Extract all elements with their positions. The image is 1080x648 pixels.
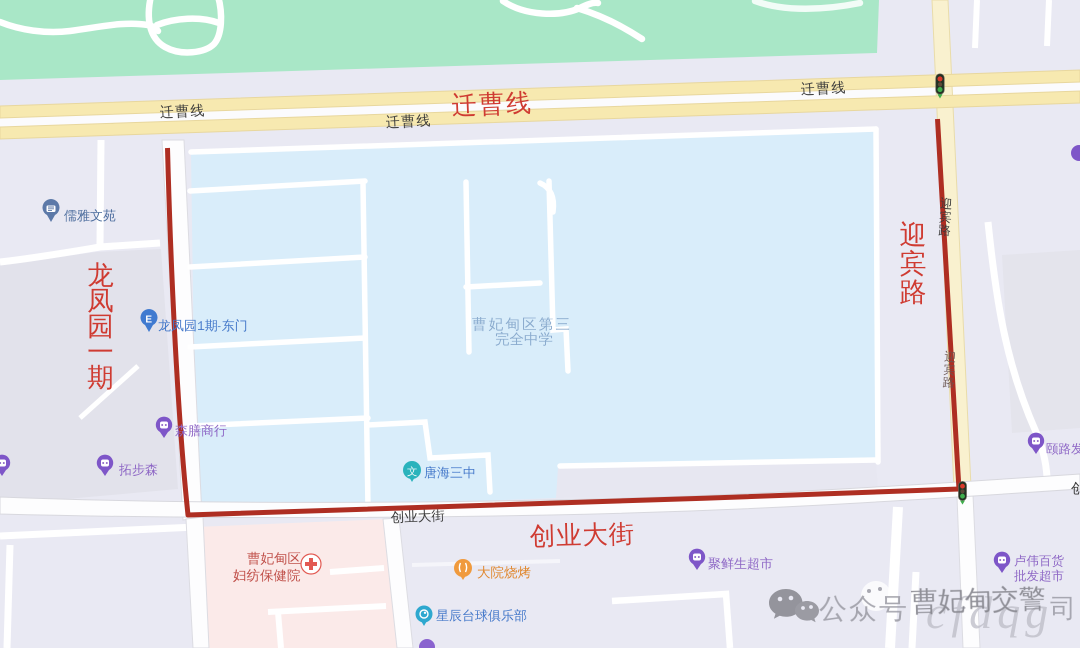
svg-text:E: E xyxy=(145,315,152,326)
svg-text:cfdqg: cfdqg xyxy=(926,587,1053,638)
